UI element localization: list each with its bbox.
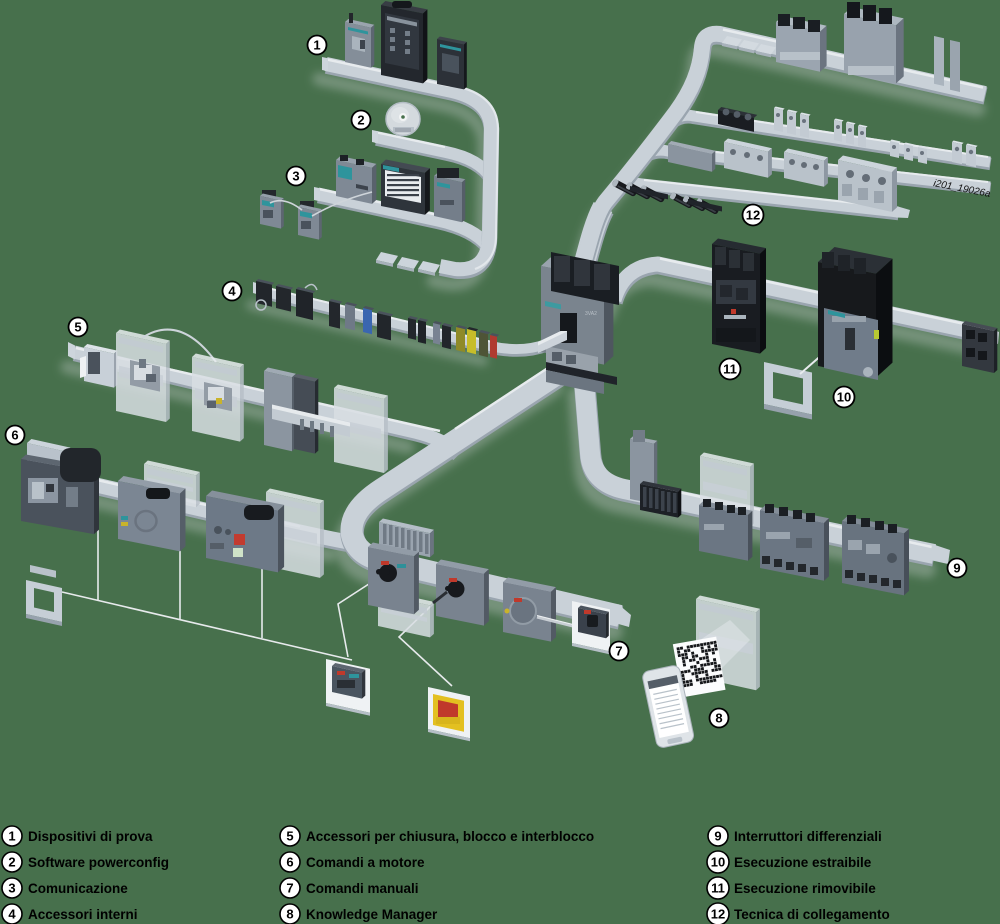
svg-text:7: 7 (286, 881, 293, 896)
svg-text:11: 11 (723, 362, 737, 377)
svg-text:Dispositivi di prova: Dispositivi di prova (28, 829, 153, 844)
svg-text:Accessori per chiusura, blocco: Accessori per chiusura, blocco e interbl… (306, 829, 594, 844)
svg-text:Esecuzione rimovibile: Esecuzione rimovibile (734, 881, 876, 896)
svg-text:10: 10 (711, 855, 725, 870)
svg-text:5: 5 (286, 829, 293, 844)
svg-text:3: 3 (292, 169, 299, 184)
svg-text:9: 9 (714, 829, 721, 844)
svg-text:10: 10 (837, 390, 851, 405)
svg-text:8: 8 (286, 907, 293, 922)
svg-text:Software powerconfig: Software powerconfig (28, 855, 169, 870)
svg-text:2: 2 (8, 855, 15, 870)
svg-text:9: 9 (953, 561, 960, 576)
svg-text:1: 1 (8, 829, 15, 844)
svg-text:6: 6 (286, 855, 293, 870)
svg-text:Tecnica di collegamento: Tecnica di collegamento (734, 907, 890, 922)
svg-text:7: 7 (615, 644, 622, 659)
svg-text:Interruttori differenziali: Interruttori differenziali (734, 829, 882, 844)
svg-text:Comandi manuali: Comandi manuali (306, 881, 419, 896)
svg-text:3: 3 (8, 881, 15, 896)
svg-text:8: 8 (715, 711, 722, 726)
svg-text:12: 12 (711, 907, 725, 922)
svg-text:11: 11 (711, 881, 725, 896)
svg-text:5: 5 (74, 320, 81, 335)
svg-text:3VA2: 3VA2 (585, 311, 597, 317)
svg-text:4: 4 (228, 284, 236, 299)
svg-text:6: 6 (11, 428, 18, 443)
svg-text:1: 1 (313, 38, 320, 53)
svg-text:Knowledge Manager: Knowledge Manager (306, 907, 438, 922)
svg-text:Esecuzione estraibile: Esecuzione estraibile (734, 855, 872, 870)
svg-text:4: 4 (8, 907, 16, 922)
svg-text:2: 2 (357, 113, 364, 128)
svg-text:12: 12 (746, 208, 760, 223)
svg-text:Accessori interni: Accessori interni (28, 907, 138, 922)
svg-text:Comunicazione: Comunicazione (28, 881, 128, 896)
svg-text:Comandi a motore: Comandi a motore (306, 855, 425, 870)
